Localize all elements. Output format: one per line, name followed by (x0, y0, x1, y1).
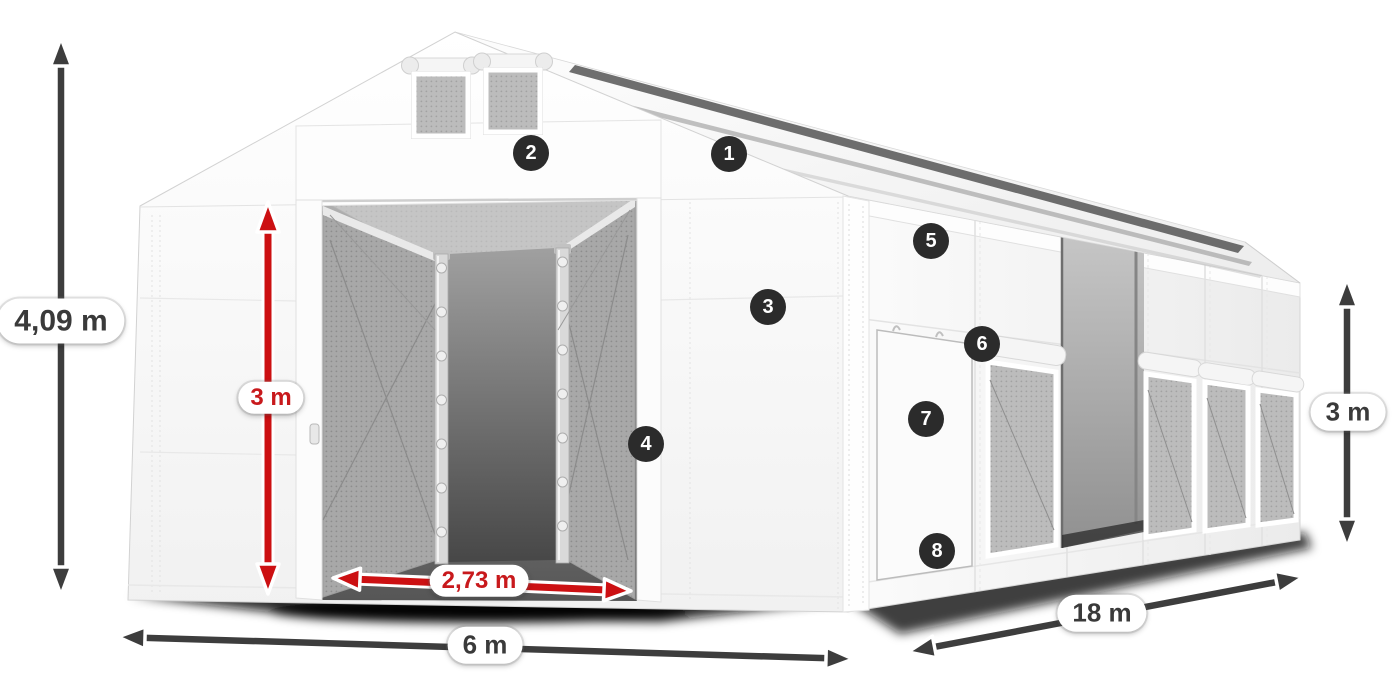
side-window-4 (1251, 370, 1305, 525)
dimension-label-total-height: 4,09 m (0, 299, 125, 344)
dimension-label-side-length: 18 m (1057, 595, 1146, 632)
front-door-left-leaf (323, 206, 437, 597)
dimension-label-front-width: 6 m (448, 627, 523, 664)
feature-marker-4[interactable]: 4 (628, 426, 664, 462)
feature-marker-8[interactable]: 8 (919, 533, 955, 569)
side-window-2 (1137, 351, 1203, 537)
dimension-label-side-height: 3 m (1311, 394, 1386, 431)
tent-illustration (0, 0, 1400, 700)
feature-marker-6[interactable]: 6 (964, 326, 1000, 362)
feature-marker-3[interactable]: 3 (750, 289, 786, 325)
feature-marker-2[interactable]: 2 (513, 135, 549, 171)
door-pole-left (433, 250, 450, 564)
gable-vent-left (402, 57, 481, 139)
gable-vent-right (474, 53, 553, 135)
front-door-right-leaf (563, 198, 635, 599)
door-handle (310, 424, 319, 444)
feature-marker-5[interactable]: 5 (913, 223, 949, 259)
side-window-3 (1197, 362, 1257, 531)
product-dimension-diagram: 4,09 m 3 m 2,73 m 6 m 18 m 3 m 1 2 3 4 5… (0, 0, 1400, 700)
corner-strip (843, 196, 869, 612)
dimension-label-door-width: 2,73 m (430, 565, 529, 597)
door-pole-right (554, 244, 571, 563)
dimension-label-door-height: 3 m (238, 382, 303, 414)
feature-marker-7[interactable]: 7 (908, 401, 944, 437)
side-opening (1056, 214, 1144, 548)
front-door-opening (322, 198, 637, 601)
feature-marker-1[interactable]: 1 (711, 136, 747, 172)
